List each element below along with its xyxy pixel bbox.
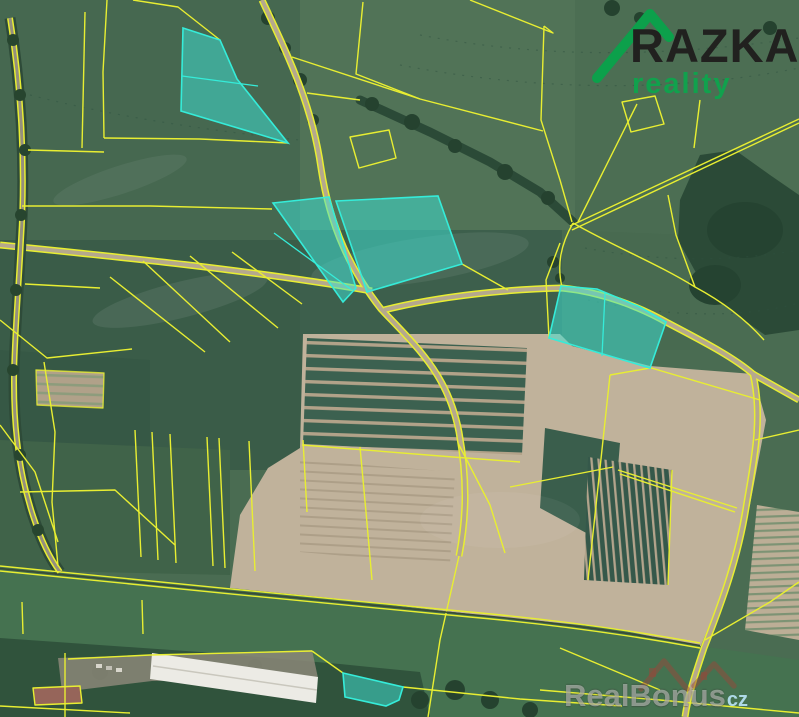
red-roof-building xyxy=(33,686,82,705)
aerial-map-image xyxy=(0,0,799,717)
orchard-rows-a xyxy=(303,338,527,455)
map-canvas: RAZKA reality RealBonuscz xyxy=(0,0,799,717)
